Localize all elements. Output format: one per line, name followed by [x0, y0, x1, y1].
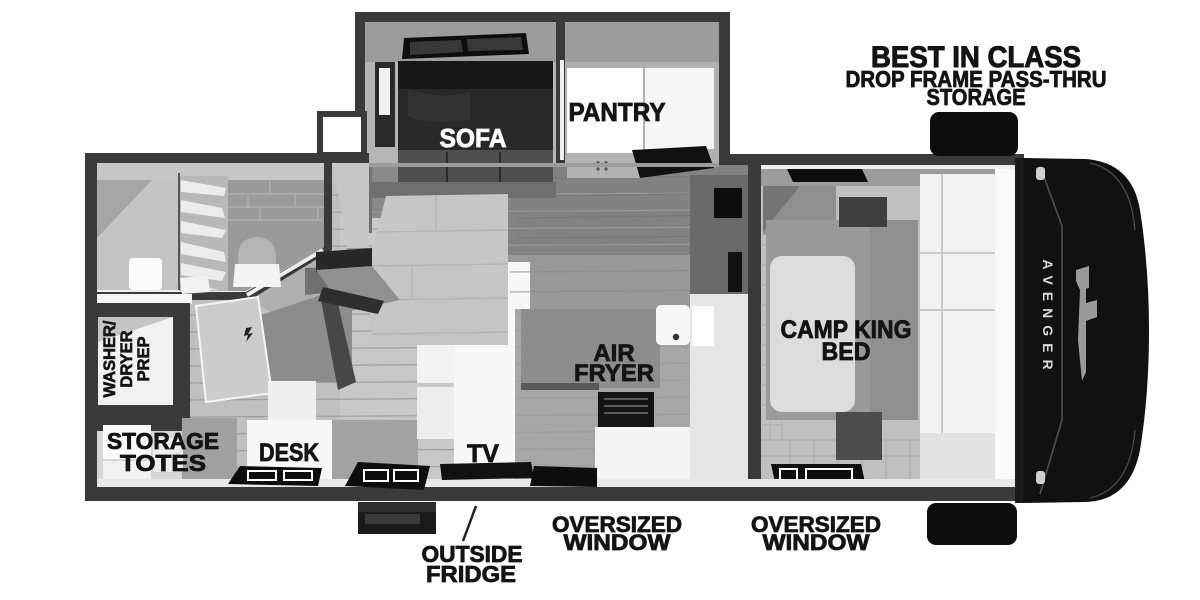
svg-text:TOTES: TOTES	[120, 450, 206, 476]
svg-text:WINDOW: WINDOW	[763, 530, 870, 555]
svg-text:WINDOW: WINDOW	[564, 530, 671, 555]
svg-text:DESK: DESK	[259, 439, 319, 467]
svg-text:FRYER: FRYER	[574, 360, 654, 387]
svg-text:AVENGER: AVENGER	[1040, 259, 1056, 376]
svg-text:SOFA: SOFA	[440, 123, 507, 153]
svg-text:PANTRY: PANTRY	[569, 97, 666, 127]
svg-text:FRIDGE: FRIDGE	[426, 561, 516, 587]
svg-text:STORAGE: STORAGE	[927, 84, 1026, 110]
svg-text:BED: BED	[822, 338, 871, 366]
